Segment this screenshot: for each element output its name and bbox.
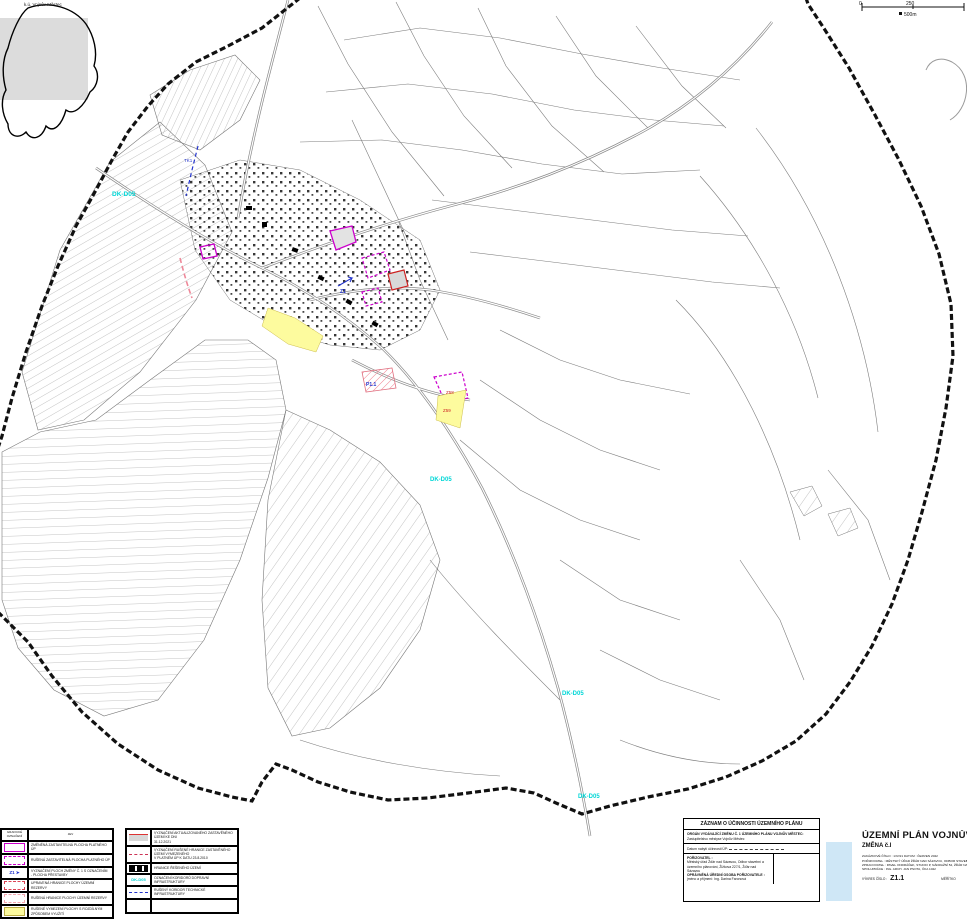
scale-label: MĚŘÍTKO (941, 877, 956, 881)
legend-item: RUŠENÁ HRANICE PLOCHY ÚZEMNÍ REZERVY (28, 892, 113, 905)
plan-title: ÚZEMNÍ PLÁN VOJNŮV MĚSTEC (862, 830, 967, 842)
title-block-color-tab (826, 842, 852, 901)
map-canvas: DK-D05 DK-D05 DK-D05 DK-D05 Z58 Z59 P1.1… (0, 0, 967, 901)
scale-zero: 0 (859, 1, 862, 7)
drawing-number-label: VÝKRES ČÍSLO : (862, 877, 887, 881)
signature-line (729, 846, 784, 850)
record-bottom: POŘIZOVATEL : Městský úřad Žďár nad Sáza… (684, 854, 819, 884)
corridor-label: DK-D05 (562, 691, 584, 697)
coop-row: SPOLUPRÁCE : ING. ARCH. JAN PSOTA, ČKA 1… (862, 867, 967, 871)
north-arrow-icon (926, 59, 967, 120)
scale-bar: 0 250 500m (859, 1, 964, 18)
redevelopment-area (362, 368, 396, 392)
zone-label: Z58 (446, 390, 454, 395)
village-buildings (180, 160, 440, 350)
legend-item: HRANICE ŘEŠENÉHO ÚZEMÍ (151, 863, 238, 874)
cancelled-tech-corridor-swatch (126, 886, 151, 899)
record-effective-label: Datum nabytí účinnosti ÚP: (687, 847, 728, 851)
zone-label: Z1 (340, 289, 346, 295)
cancelled-builtup-boundary-swatch (126, 846, 151, 863)
territory-boundary-swatch (126, 863, 151, 874)
plan-sheet: { "inset": { "label": "k.ú. Vojnův Měste… (0, 0, 967, 901)
cancelled-reserve-boundary-swatch (1, 892, 28, 905)
title-block: ÚZEMNÍ PLÁN VOJNŮV MĚSTEC ZMĚNA č.I ZAKÁ… (825, 830, 967, 901)
legend-table-left: grafické označení jev ZMĚNĚNÁ ZASTAVITEL… (0, 828, 114, 919)
legend-item: RUŠENÝ KORIDOR TECHNICKÉ INFRASTRUKTURY (151, 886, 238, 899)
zone-label: Z59 (443, 408, 451, 413)
legend-item: ZMĚNĚNÁ ZASTAVITELNÁ PLOCHA PLATNÉHO ÚP (28, 841, 113, 854)
change-area-mark-icon: Z1 ➤ (1, 867, 28, 880)
corridor-label: DK-D05 (578, 794, 600, 800)
legend-item: UPRAVENÁ HRANICE PLOCHY ÚZEMNÍ REZERVY (28, 879, 113, 892)
legend-header-desc: jev (28, 829, 113, 841)
cancelled-buildable-area-swatch (1, 854, 28, 867)
updated-builtup-area-swatch (126, 829, 151, 846)
legend-item: OZNAČENÍ KORIDORŮ DOPRAVNÍ INFRASTRUKTUR… (151, 874, 238, 887)
record-issuer-value: Zastupitelstvo městyse Vojnův Městec (687, 837, 744, 841)
legend-item: VYZNAČENÍ PLOCH ZMĚNY Č. 1 S OZNAČENÍM -… (28, 867, 113, 880)
transport-corridor-label-swatch: DK-D05 (126, 874, 151, 887)
legend-header-symbol: grafické označení (1, 829, 28, 841)
record-effective-date: Datum nabytí účinnosti ÚP: (684, 844, 819, 854)
field-strip-regions (2, 55, 858, 736)
adjusted-reserve-boundary-swatch (1, 879, 28, 892)
legend-item: VYZNAČENÍ AKTUALIZOVANÉHO ZASTAVĚNÉHO ÚZ… (151, 829, 238, 846)
locator-inset: k.ú. Vojnův Městec (0, 1, 97, 138)
record-buyer-value: Městský úřad Žďár nad Sázavou, Odbor sta… (687, 860, 764, 873)
record-of-effectiveness-box: ZÁZNAM O ÚČINNOSTI ÚZEMNÍHO PLÁNU ORGÁN … (683, 818, 820, 902)
record-box-title: ZÁZNAM O ÚČINNOSTI ÚZEMNÍHO PLÁNU (684, 819, 819, 830)
inset-label: k.ú. Vojnův Městec (24, 1, 63, 7)
changed-buildable-area-swatch (1, 841, 28, 854)
record-buyer: POŘIZOVATEL : Městský úřad Žďár nad Sáza… (684, 854, 774, 884)
cancelled-use-area-swatch (1, 905, 28, 918)
corridor-label: DK-D05 (430, 477, 452, 483)
scale-unit: 500m (904, 12, 917, 18)
corridor-label: DK-D05 (112, 191, 136, 198)
record-person-value: jméno a příjmení: Ing. Darina Faronová (687, 877, 746, 881)
builtup-update-polygon (388, 270, 408, 290)
drawing-number: Z1.1 (890, 875, 904, 884)
zone-label: P1.1 (366, 382, 377, 388)
legend-item: VYZNAČENÍ RUŠENÉ HRANICE ZASTAVĚNÉHO ÚZE… (151, 846, 238, 863)
cancelled-use-area (436, 390, 466, 428)
record-stamp-cell (774, 854, 819, 884)
plan-subtitle: ZMĚNA č.I (862, 843, 967, 851)
record-issuer: ORGÁN VYDÁVAJÍCÍ ZMĚNU Č. 1 ÚZEMNÍHO PLÁ… (684, 830, 819, 844)
zone-label: TK1 (184, 158, 193, 163)
scale-mid: 250 (906, 1, 915, 7)
legend-item: RUŠENÉ VYMEZENÍ PLOCHY S ROZDÍLNÝM ZPŮSO… (28, 905, 113, 918)
legend-item: RUŠENÁ ZASTAVITELNÁ PLOCHA PLATNÉHO ÚP (28, 854, 113, 867)
